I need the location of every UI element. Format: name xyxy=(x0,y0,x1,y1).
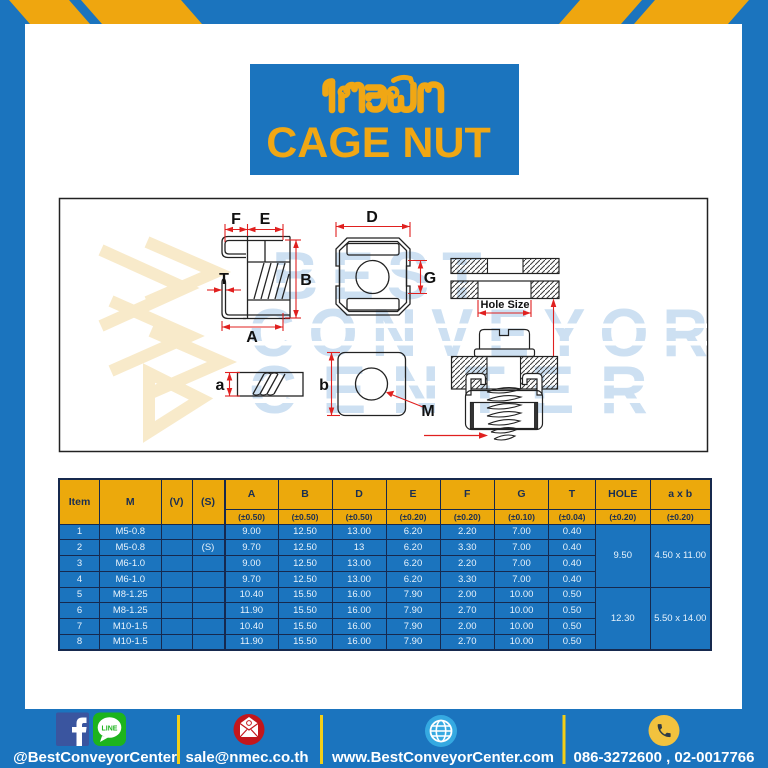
svg-text:Hole Size: Hole Size xyxy=(481,299,530,311)
svg-text:A: A xyxy=(246,329,258,346)
svg-text:M: M xyxy=(421,403,434,420)
svg-text:LINE: LINE xyxy=(102,726,118,733)
svg-text:CAGE NUT: CAGE NUT xyxy=(266,119,491,167)
svg-text:a: a xyxy=(216,377,225,394)
svg-text:G: G xyxy=(424,270,436,287)
svg-text:b: b xyxy=(319,377,329,394)
svg-text:F: F xyxy=(231,211,241,228)
svg-text:@BestConveyorCenter: @BestConveyorCenter xyxy=(13,749,177,766)
svg-text:E: E xyxy=(260,211,271,228)
svg-text:B: B xyxy=(300,272,312,289)
svg-text:086-3272600 , 02-0017766: 086-3272600 , 02-0017766 xyxy=(574,749,755,766)
svg-text:sale@nmec.co.th: sale@nmec.co.th xyxy=(185,749,308,766)
svg-text:D: D xyxy=(366,209,378,226)
svg-text:T: T xyxy=(219,271,229,288)
svg-text:www.BestConveyorCenter.com: www.BestConveyorCenter.com xyxy=(331,749,554,766)
